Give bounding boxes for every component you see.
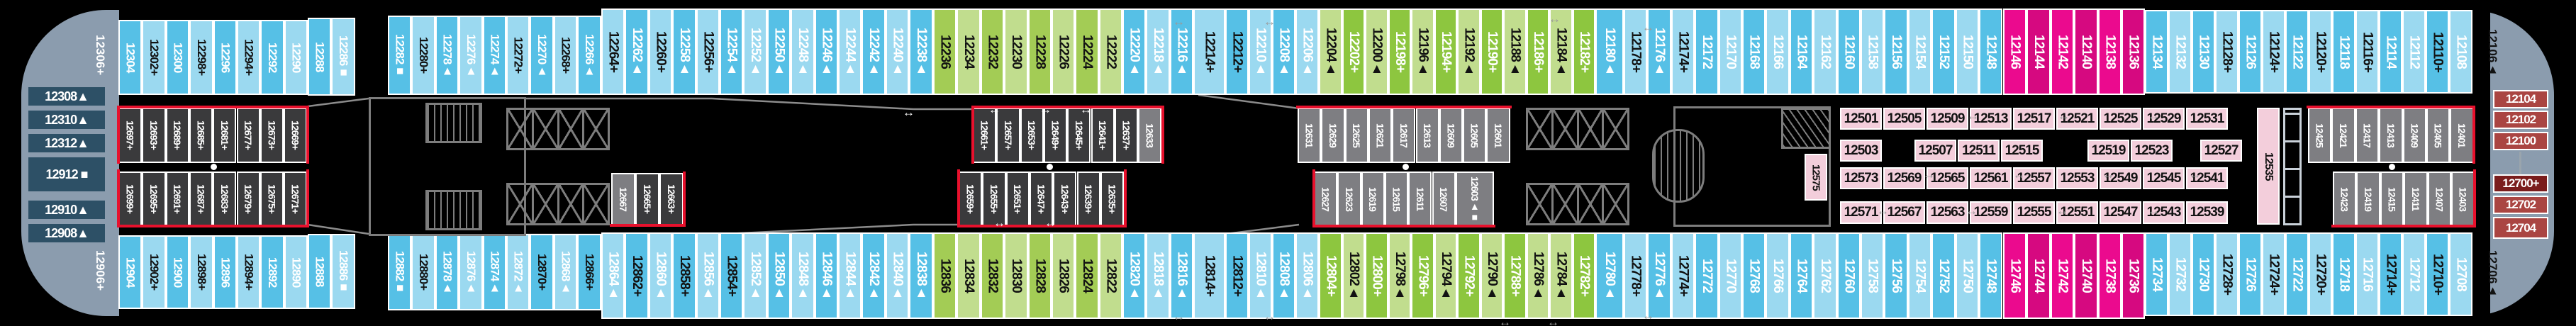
cabin-12110[interactable]: 12110+ [2426, 10, 2449, 94]
cabin-12511[interactable]: 12511 [1958, 140, 2000, 162]
cabin-12232[interactable]: 12232 [981, 9, 1004, 95]
cabin-12738[interactable]: 12738 [2098, 232, 2121, 319]
cabin-12118[interactable]: 12118 [2332, 10, 2355, 94]
cabin-12710[interactable]: 12710+ [2426, 232, 2449, 316]
cabin-12822[interactable]: 12822 [1099, 232, 1122, 319]
cabin-12224[interactable]: 12224 [1075, 9, 1098, 95]
cabin-12878[interactable]: 12878▲ [435, 234, 459, 310]
cabin-12563[interactable]: 12563 [1927, 201, 1968, 224]
cabin-12780[interactable]: 12780▲ [1595, 232, 1624, 319]
cabin-12758[interactable]: 12758 [1861, 232, 1884, 319]
cabin-12246[interactable]: 12246▲ [815, 9, 838, 95]
cabin-12513[interactable]: 12513 [1970, 108, 2012, 130]
cabin-12505[interactable]: 12505 [1883, 108, 1925, 130]
cabin-12816[interactable]: 12816▲ [1170, 232, 1193, 319]
cabin-12158[interactable]: 12158 [1861, 9, 1884, 95]
cabin-12712[interactable]: 12712 [2402, 232, 2426, 316]
cabin-12212[interactable]: 12212+ [1225, 9, 1249, 95]
cabin-12164[interactable]: 12164 [1790, 9, 1813, 95]
cabin-12234[interactable]: 12234 [957, 9, 980, 95]
cabin-12724[interactable]: 12724+ [2262, 232, 2285, 316]
cabin-12842[interactable]: 12842▲ [862, 232, 885, 319]
cabin-12150[interactable]: 12150 [1956, 9, 1979, 95]
cabin-12892[interactable]: 12892 [260, 235, 284, 309]
cabin-12515[interactable]: 12515 [2001, 140, 2043, 162]
cabin-12748[interactable]: 12748 [1979, 232, 2002, 319]
cabin-12425[interactable]: 12425 [2308, 108, 2331, 163]
cabin-12635[interactable]: 12635+ [1100, 172, 1124, 227]
cabin-12196[interactable]: 12196▲ [1411, 9, 1434, 95]
cabin-12629[interactable]: 12629 [1321, 108, 1344, 163]
cabin-12657[interactable]: 12657+ [996, 108, 1020, 163]
cabin-12800[interactable]: 12800+ [1365, 232, 1388, 319]
cabin-12687[interactable]: 12687+ [189, 172, 213, 227]
cabin-12120[interactable]: 12120+ [2309, 10, 2332, 94]
cabin-12302[interactable]: 12302+ [142, 20, 165, 95]
cabin-12116[interactable]: 12116+ [2355, 10, 2379, 94]
cabin-12419[interactable]: 12419 [2356, 172, 2380, 227]
cabin-12168[interactable]: 12168 [1742, 9, 1766, 95]
cabin-12423[interactable]: 12423 [2333, 172, 2356, 227]
cabin-12174[interactable]: 12174+ [1671, 9, 1695, 95]
cabin-12675[interactable]: 12675+ [260, 172, 284, 227]
cabin-12202[interactable]: 12202+ [1342, 9, 1366, 95]
cabin-12108[interactable]: 12108 [2449, 10, 2472, 94]
cabin-12146[interactable]: 12146 [2003, 9, 2026, 95]
cabin-12641[interactable]: 12641+ [1091, 108, 1115, 163]
cabin-12790[interactable]: 12790▲ [1481, 232, 1504, 319]
cabin-12706[interactable]: 12706▲ [2480, 237, 2504, 310]
cabin-12730[interactable]: 12730 [2192, 232, 2215, 316]
cabin-12206[interactable]: 12206▲ [1295, 9, 1319, 95]
cabin-12820[interactable]: 12820▲ [1122, 232, 1146, 319]
cabin-12503[interactable]: 12503 [1840, 140, 1882, 162]
cabin-12609[interactable]: 12609 [1439, 108, 1463, 163]
cabin-12268[interactable]: 12268+ [554, 16, 577, 95]
cabin-12601[interactable]: 12601 [1486, 108, 1510, 163]
cabin-12256[interactable]: 12256+ [696, 9, 720, 95]
cabin-12633[interactable]: 12633 [1138, 108, 1161, 163]
cabin-12140[interactable]: 12140 [2074, 9, 2097, 95]
cabin-12788[interactable]: 12788+ [1503, 232, 1527, 319]
cabin-12132[interactable]: 12132 [2168, 10, 2192, 94]
cabin-12679[interactable]: 12679+ [237, 172, 260, 227]
cabin-12186[interactable]: 12186+ [1527, 9, 1550, 95]
cabin-12714[interactable]: 12714+ [2379, 232, 2402, 316]
cabin-12613[interactable]: 12613 [1416, 108, 1439, 163]
cabin-12242[interactable]: 12242▲ [862, 9, 885, 95]
cabin-12525[interactable]: 12525 [2100, 108, 2141, 130]
cabin-12230[interactable]: 12230 [1004, 9, 1027, 95]
cabin-12270[interactable]: 12270▲ [530, 16, 553, 95]
cabin-12401[interactable]: 12401 [2450, 108, 2473, 163]
cabin-12210[interactable]: 12210▲ [1249, 9, 1272, 95]
cabin-12415[interactable]: 12415 [2380, 172, 2404, 227]
cabin-12623[interactable]: 12623 [1337, 172, 1361, 227]
cabin-12732[interactable]: 12732 [2168, 232, 2192, 316]
cabin-12136[interactable]: 12136 [2121, 9, 2145, 95]
cabin-12882[interactable]: 12882■ [388, 234, 411, 310]
cabin-12541[interactable]: 12541 [2186, 167, 2228, 189]
cabin-12128[interactable]: 12128+ [2215, 10, 2238, 94]
cabin-12834[interactable]: 12834 [957, 232, 980, 319]
cabin-12649[interactable]: 12649+ [1044, 108, 1067, 163]
cabin-12708[interactable]: 12708 [2449, 232, 2472, 316]
cabin-12272[interactable]: 12272+ [506, 16, 530, 95]
cabin-12539[interactable]: 12539 [2186, 201, 2228, 224]
cabin-12527[interactable]: 12527 [2200, 140, 2242, 162]
cabin-12573[interactable]: 12573 [1840, 167, 1882, 189]
cabin-12695[interactable]: 12695+ [142, 172, 165, 227]
cabin-12405[interactable]: 12405 [2426, 108, 2450, 163]
cabin-12523[interactable]: 12523 [2131, 140, 2173, 162]
cabin-12184[interactable]: 12184▲ [1549, 9, 1573, 95]
cabin-12172[interactable]: 12172 [1695, 9, 1718, 95]
cabin-12236[interactable]: 12236 [933, 9, 957, 95]
cabin-12868[interactable]: 12868▲ [554, 234, 577, 310]
cabin-12740[interactable]: 12740 [2074, 232, 2097, 319]
cabin-12810[interactable]: 12810▲ [1249, 232, 1272, 319]
cabin-12826[interactable]: 12826 [1052, 232, 1075, 319]
cabin-12126[interactable]: 12126 [2238, 10, 2262, 94]
cabin-12238[interactable]: 12238▲ [909, 9, 932, 95]
cabin-12605[interactable]: 12605 [1463, 108, 1486, 163]
cabin-12667[interactable]: 12667 [611, 173, 635, 225]
cabin-12250[interactable]: 12250▲ [767, 9, 791, 95]
cabin-12100[interactable]: 12100 [2493, 132, 2548, 150]
cabin-12681[interactable]: 12681+ [213, 108, 236, 163]
cabin-12858[interactable]: 12858+ [672, 232, 696, 319]
cabin-12569[interactable]: 12569 [1883, 167, 1925, 189]
cabin-12300[interactable]: 12300 [166, 20, 189, 95]
cabin-12663[interactable]: 12663+ [659, 173, 684, 225]
cabin-12874[interactable]: 12874▲ [483, 234, 506, 310]
cabin-12198[interactable]: 12198+ [1388, 9, 1412, 95]
cabin-12846[interactable]: 12846▲ [815, 232, 838, 319]
cabin-12190[interactable]: 12190+ [1481, 9, 1504, 95]
cabin-12718[interactable]: 12718 [2332, 232, 2355, 316]
cabin-12417[interactable]: 12417 [2355, 108, 2379, 163]
cabin-12565[interactable]: 12565 [1927, 167, 1968, 189]
cabin-12561[interactable]: 12561 [1970, 167, 2012, 189]
cabin-12288[interactable]: 12288 [308, 18, 331, 96]
cabin-12122[interactable]: 12122 [2285, 10, 2309, 94]
cabin-12864[interactable]: 12864▲ [601, 232, 625, 319]
cabin-12138[interactable]: 12138 [2098, 9, 2121, 95]
cabin-12704[interactable]: 12704 [2493, 217, 2548, 239]
cabin-12866[interactable]: 12866+ [577, 234, 601, 310]
cabin-12298[interactable]: 12298+ [189, 20, 213, 95]
cabin-12876[interactable]: 12876▲ [459, 234, 482, 310]
cabin-12156[interactable]: 12156 [1884, 9, 1907, 95]
cabin-12700[interactable]: 12700+ [2493, 174, 2548, 193]
cabin-12411[interactable]: 12411 [2404, 172, 2427, 227]
cabin-12294[interactable]: 12294+ [237, 20, 260, 95]
cabin-12824[interactable]: 12824 [1075, 232, 1098, 319]
cabin-12409[interactable]: 12409 [2403, 108, 2426, 163]
cabin-12160[interactable]: 12160 [1837, 9, 1861, 95]
cabin-12621[interactable]: 12621 [1368, 108, 1392, 163]
cabin-12567[interactable]: 12567 [1883, 201, 1925, 224]
cabin-12148[interactable]: 12148 [1979, 9, 2002, 95]
cabin-12112[interactable]: 12112 [2402, 10, 2426, 94]
cabin-12178[interactable]: 12178+ [1624, 9, 1647, 95]
cabin-12617[interactable]: 12617 [1392, 108, 1415, 163]
cabin-12162[interactable]: 12162 [1813, 9, 1836, 95]
cabin-12896[interactable]: 12896 [213, 235, 237, 309]
cabin-12734[interactable]: 12734 [2145, 232, 2168, 316]
cabin-12776[interactable]: 12776▲ [1647, 232, 1671, 319]
cabin-12290[interactable]: 12290 [284, 20, 308, 95]
cabin-12886[interactable]: 12886■ [331, 234, 355, 309]
cabin-12766[interactable]: 12766 [1766, 232, 1789, 319]
cabin-12736[interactable]: 12736 [2121, 232, 2145, 319]
cabin-12258[interactable]: 12258▲ [672, 9, 696, 95]
cabin-12870[interactable]: 12870+ [530, 234, 553, 310]
cabin-12286[interactable]: 12286■ [331, 18, 355, 96]
cabin-12691[interactable]: 12691+ [166, 172, 189, 227]
cabin-12774[interactable]: 12774+ [1671, 232, 1695, 319]
cabin-12697[interactable]: 12697+ [118, 108, 142, 163]
cabin-12814[interactable]: 12814+ [1193, 232, 1225, 319]
cabin-12677[interactable]: 12677+ [237, 108, 260, 163]
cabin-12744[interactable]: 12744 [2026, 232, 2050, 319]
cabin-12812[interactable]: 12812+ [1225, 232, 1249, 319]
cabin-12276[interactable]: 12276▲ [459, 16, 482, 95]
cabin-12553[interactable]: 12553 [2056, 167, 2098, 189]
cabin-12152[interactable]: 12152 [1931, 9, 1955, 95]
cabin-12768[interactable]: 12768 [1742, 232, 1766, 319]
cabin-12188[interactable]: 12188▲ [1503, 9, 1527, 95]
cabin-12796[interactable]: 12796+ [1411, 232, 1434, 319]
cabin-12720[interactable]: 12720+ [2309, 232, 2332, 316]
cabin-12848[interactable]: 12848▲ [791, 232, 814, 319]
cabin-12772[interactable]: 12772 [1695, 232, 1718, 319]
cabin-12228[interactable]: 12228 [1028, 9, 1052, 95]
cabin-12655[interactable]: 12655+ [982, 172, 1005, 227]
cabin-12830[interactable]: 12830 [1004, 232, 1027, 319]
cabin-12403[interactable]: 12403 [2451, 172, 2475, 227]
cabin-12786[interactable]: 12786▲ [1527, 232, 1550, 319]
cabin-12651[interactable]: 12651+ [1006, 172, 1030, 227]
cabin-12218[interactable]: 12218▲ [1146, 9, 1169, 95]
cabin-12557[interactable]: 12557 [2013, 167, 2055, 189]
cabin-12254[interactable]: 12254▲ [720, 9, 743, 95]
cabin-12784[interactable]: 12784▲ [1549, 232, 1573, 319]
cabin-12627[interactable]: 12627 [1314, 172, 1337, 227]
cabin-12625[interactable]: 12625 [1345, 108, 1368, 163]
cabin-12900[interactable]: 12900 [166, 235, 189, 309]
cabin-12912[interactable]: 12912 ■ [27, 156, 106, 193]
cabin-12248[interactable]: 12248▲ [791, 9, 814, 95]
cabin-12180[interactable]: 12180▲ [1595, 9, 1624, 95]
cabin-12665[interactable]: 12665+ [635, 173, 659, 225]
cabin-12898[interactable]: 12898+ [189, 235, 213, 309]
cabin-12856[interactable]: 12856▲ [696, 232, 720, 319]
cabin-12659[interactable]: 12659+ [959, 172, 982, 227]
cabin-12252[interactable]: 12252▲ [743, 9, 766, 95]
cabin-12671[interactable]: 12671+ [284, 172, 307, 227]
cabin-12661[interactable]: 12661+ [973, 108, 996, 163]
cabin-12792[interactable]: 12792+ [1457, 232, 1481, 319]
cabin-12603[interactable]: 12603▲■ [1456, 172, 1494, 227]
cabin-12517[interactable]: 12517 [2013, 108, 2055, 130]
cabin-12852[interactable]: 12852▲ [743, 232, 766, 319]
cabin-12782[interactable]: 12782+ [1573, 232, 1596, 319]
cabin-12264[interactable]: 12264+ [601, 9, 625, 95]
cabin-12904[interactable]: 12904 [118, 235, 142, 309]
cabin-12673[interactable]: 12673+ [260, 108, 284, 163]
cabin-12778[interactable]: 12778+ [1624, 232, 1647, 319]
cabin-12637[interactable]: 12637+ [1115, 108, 1138, 163]
cabin-12304[interactable]: 12304 [118, 20, 142, 95]
cabin-12639[interactable]: 12639+ [1077, 172, 1100, 227]
cabin-12240[interactable]: 12240▲ [886, 9, 909, 95]
cabin-12653[interactable]: 12653+ [1020, 108, 1044, 163]
cabin-12808[interactable]: 12808▲ [1272, 232, 1295, 319]
cabin-12804[interactable]: 12804+ [1319, 232, 1342, 319]
cabin-12280[interactable]: 12280+ [411, 16, 435, 95]
cabin-12838[interactable]: 12838▲ [909, 232, 932, 319]
cabin-12716[interactable]: 12716 [2355, 232, 2379, 316]
cabin-12166[interactable]: 12166 [1766, 9, 1789, 95]
cabin-12902[interactable]: 12902+ [142, 235, 165, 309]
cabin-12880[interactable]: 12880+ [411, 234, 435, 310]
cabin-12208[interactable]: 12208▲ [1272, 9, 1295, 95]
cabin-12906[interactable]: 12906+ [88, 234, 112, 308]
cabin-12611[interactable]: 12611 [1408, 172, 1432, 227]
cabin-12685[interactable]: 12685+ [189, 108, 213, 163]
cabin-12770[interactable]: 12770 [1719, 232, 1742, 319]
cabin-12266[interactable]: 12266▲ [577, 16, 601, 95]
cabin-12683[interactable]: 12683+ [213, 172, 236, 227]
cabin-12615[interactable]: 12615 [1385, 172, 1408, 227]
cabin-12555[interactable]: 12555 [2013, 201, 2055, 224]
cabin-12200[interactable]: 12200▲ [1365, 9, 1388, 95]
cabin-12702[interactable]: 12702 [2493, 196, 2548, 214]
cabin-12862[interactable]: 12862+ [625, 232, 648, 319]
cabin-12194[interactable]: 12194+ [1434, 9, 1458, 95]
cabin-12292[interactable]: 12292 [260, 20, 284, 95]
cabin-12551[interactable]: 12551 [2056, 201, 2098, 224]
cabin-12244[interactable]: 12244▲ [838, 9, 862, 95]
cabin-12854[interactable]: 12854+ [720, 232, 743, 319]
cabin-12746[interactable]: 12746 [2003, 232, 2026, 319]
cabin-12521[interactable]: 12521 [2056, 108, 2098, 130]
cabin-12726[interactable]: 12726 [2238, 232, 2262, 316]
cabin-12910[interactable]: 12910▲ [27, 199, 106, 220]
cabin-12274[interactable]: 12274▲ [483, 16, 506, 95]
cabin-12645[interactable]: 12645+ [1067, 108, 1091, 163]
cabin-12182[interactable]: 12182+ [1573, 9, 1596, 95]
cabin-12102[interactable]: 12102 [2493, 111, 2548, 129]
cabin-12142[interactable]: 12142 [2051, 9, 2074, 95]
cabin-12170[interactable]: 12170 [1719, 9, 1742, 95]
cabin-12762[interactable]: 12762 [1813, 232, 1836, 319]
cabin-12312[interactable]: 12312▲ [27, 133, 106, 154]
cabin-12818[interactable]: 12818▲ [1146, 232, 1169, 319]
cabin-12559[interactable]: 12559 [1970, 201, 2012, 224]
cabin-12750[interactable]: 12750 [1956, 232, 1979, 319]
cabin-12310[interactable]: 12310▲ [27, 109, 106, 130]
cabin-12154[interactable]: 12154 [1908, 9, 1931, 95]
cabin-12519[interactable]: 12519 [2087, 140, 2129, 162]
cabin-12764[interactable]: 12764 [1790, 232, 1813, 319]
cabin-12134[interactable]: 12134 [2145, 10, 2168, 94]
cabin-12545[interactable]: 12545 [2143, 167, 2185, 189]
cabin-12547[interactable]: 12547 [2100, 201, 2141, 224]
cabin-12106[interactable]: 12106▲ [2480, 16, 2504, 89]
cabin-12130[interactable]: 12130 [2192, 10, 2215, 94]
cabin-12421[interactable]: 12421 [2331, 108, 2355, 163]
cabin-12216[interactable]: 12216▲ [1170, 9, 1193, 95]
cabin-12278[interactable]: 12278▲ [435, 16, 459, 95]
cabin-12619[interactable]: 12619 [1361, 172, 1385, 227]
cabin-12840[interactable]: 12840▲ [886, 232, 909, 319]
cabin-12529[interactable]: 12529 [2143, 108, 2185, 130]
cabin-12192[interactable]: 12192▲ [1457, 9, 1481, 95]
cabin-12888[interactable]: 12888 [308, 234, 331, 309]
cabin-12860[interactable]: 12860▲ [649, 232, 672, 319]
cabin-12306[interactable]: 12306+ [88, 18, 112, 92]
cabin-12722[interactable]: 12722 [2285, 232, 2309, 316]
cabin-12752[interactable]: 12752 [1931, 232, 1955, 319]
cabin-12631[interactable]: 12631 [1298, 108, 1321, 163]
cabin-12607[interactable]: 12607 [1432, 172, 1456, 227]
cabin-12643[interactable]: 12643+ [1053, 172, 1076, 227]
cabin-12647[interactable]: 12647+ [1030, 172, 1053, 227]
cabin-12828[interactable]: 12828 [1028, 232, 1052, 319]
cabin-12760[interactable]: 12760 [1837, 232, 1861, 319]
cabin-12407[interactable]: 12407 [2428, 172, 2451, 227]
cabin-12872[interactable]: 12872▲ [506, 234, 530, 310]
cabin-12549[interactable]: 12549 [2100, 167, 2141, 189]
cabin-12850[interactable]: 12850▲ [767, 232, 791, 319]
cabin-12693[interactable]: 12693+ [142, 108, 165, 163]
cabin-12176[interactable]: 12176▲ [1647, 9, 1671, 95]
cabin-12844[interactable]: 12844▲ [838, 232, 862, 319]
cabin-12204[interactable]: 12204▲ [1319, 9, 1342, 95]
cabin-12890[interactable]: 12890 [284, 235, 308, 309]
cabin-12894[interactable]: 12894+ [237, 235, 260, 309]
cabin-12794[interactable]: 12794▲ [1434, 232, 1458, 319]
cabin-12144[interactable]: 12144 [2026, 9, 2050, 95]
cabin-12699[interactable]: 12699+ [118, 172, 142, 227]
cabin-12798[interactable]: 12798▲ [1388, 232, 1412, 319]
cabin-12222[interactable]: 12222 [1099, 9, 1122, 95]
cabin-12756[interactable]: 12756 [1884, 232, 1907, 319]
cabin-12507[interactable]: 12507 [1914, 140, 1956, 162]
cabin-12669[interactable]: 12669+ [284, 108, 307, 163]
cabin-12214[interactable]: 12214+ [1193, 9, 1225, 95]
cabin-12836[interactable]: 12836 [933, 232, 957, 319]
cabin-12543[interactable]: 12543 [2143, 201, 2185, 224]
cabin-12754[interactable]: 12754 [1908, 232, 1931, 319]
cabin-12114[interactable]: 12114 [2379, 10, 2402, 94]
cabin-12806[interactable]: 12806▲ [1295, 232, 1319, 319]
cabin-12220[interactable]: 12220▲ [1122, 9, 1146, 95]
cabin-12260[interactable]: 12260+ [649, 9, 672, 95]
cabin-12413[interactable]: 12413 [2379, 108, 2402, 163]
cabin-12535[interactable]: 12535 [2257, 108, 2280, 225]
cabin-12226[interactable]: 12226 [1052, 9, 1075, 95]
cabin-12571[interactable]: 12571 [1840, 201, 1882, 224]
cabin-12262[interactable]: 12262▲ [625, 9, 648, 95]
cabin-12728[interactable]: 12728+ [2215, 232, 2238, 316]
cabin-12742[interactable]: 12742 [2051, 232, 2074, 319]
cabin-12832[interactable]: 12832 [981, 232, 1004, 319]
cabin-12282[interactable]: 12282■ [388, 16, 411, 95]
